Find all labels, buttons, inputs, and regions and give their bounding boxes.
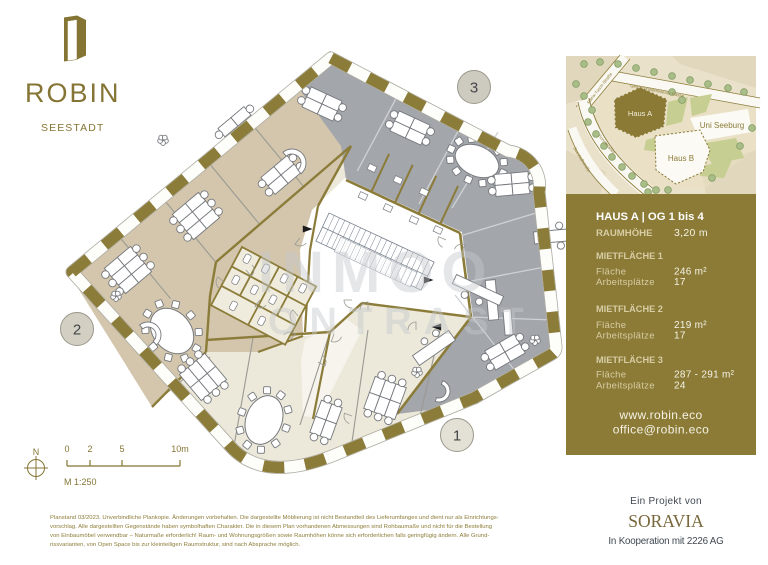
svg-text:M 1:250: M 1:250 — [64, 477, 97, 487]
svg-text:www.robin.eco: www.robin.eco — [618, 408, 702, 422]
svg-text:219 m²: 219 m² — [674, 320, 707, 331]
svg-text:Arbeitsplätze: Arbeitsplätze — [596, 381, 655, 392]
svg-text:RAUMHÖHE: RAUMHÖHE — [596, 228, 653, 239]
svg-text:17: 17 — [674, 277, 686, 288]
svg-text:Fläche: Fläche — [596, 267, 626, 278]
svg-text:MIETFLÄCHE 2: MIETFLÄCHE 2 — [596, 304, 663, 314]
svg-text:vorschlag. Alle dargestellten: vorschlag. Alle dargestellten Gegenständ… — [50, 524, 492, 530]
svg-text:MIETFLÄCHE 1: MIETFLÄCHE 1 — [596, 251, 663, 261]
svg-text:SEESTADT: SEESTADT — [41, 122, 104, 134]
svg-text:Arbeitsplätze: Arbeitsplätze — [596, 277, 655, 288]
svg-text:INMOO: INMOO — [258, 240, 495, 305]
svg-text:Haus A: Haus A — [628, 109, 652, 118]
svg-text:2: 2 — [87, 444, 92, 454]
svg-text:Ein Projekt von: Ein Projekt von — [630, 496, 702, 507]
svg-text:Uni Seeburg: Uni Seeburg — [700, 121, 744, 130]
svg-text:rissvarianten, von Open Space: rissvarianten, von Open Space bis zur kl… — [50, 542, 301, 548]
svg-text:office@robin.eco: office@robin.eco — [613, 423, 709, 437]
svg-text:5: 5 — [119, 444, 124, 454]
svg-text:SORAVIA: SORAVIA — [628, 511, 704, 531]
svg-text:Fläche: Fläche — [596, 320, 626, 331]
svg-text:Arbeitsplätze: Arbeitsplätze — [596, 331, 655, 342]
svg-text:3,20 m: 3,20 m — [674, 227, 708, 239]
svg-text:1: 1 — [453, 428, 461, 445]
svg-text:ROBIN: ROBIN — [25, 78, 121, 108]
svg-text:17: 17 — [674, 331, 686, 342]
svg-text:Haus B: Haus B — [668, 154, 694, 163]
svg-text:ONTRAST: ONTRAST — [268, 301, 536, 343]
svg-text:Planstand 03/2023. Unverbindli: Planstand 03/2023. Unverbindliche Planko… — [50, 514, 499, 521]
svg-text:24: 24 — [674, 381, 686, 392]
svg-text:287 - 291 m²: 287 - 291 m² — [674, 370, 735, 381]
svg-text:In Kooperation mit 2226 AG: In Kooperation mit 2226 AG — [608, 536, 723, 547]
svg-text:MIETFLÄCHE 3: MIETFLÄCHE 3 — [596, 355, 663, 365]
svg-text:0: 0 — [64, 444, 69, 454]
svg-text:Fläche: Fläche — [596, 370, 626, 381]
svg-text:2: 2 — [73, 322, 81, 339]
svg-text:3: 3 — [470, 80, 478, 97]
svg-text:246 m²: 246 m² — [674, 267, 707, 278]
svg-text:HAUS A | OG 1 bis 4: HAUS A | OG 1 bis 4 — [596, 211, 705, 223]
svg-text:N: N — [33, 447, 40, 457]
svg-text:von Einbaumöbel verwendbar – N: von Einbaumöbel verwendbar – Naturmaße e… — [50, 533, 489, 539]
svg-text:10m: 10m — [171, 444, 189, 454]
